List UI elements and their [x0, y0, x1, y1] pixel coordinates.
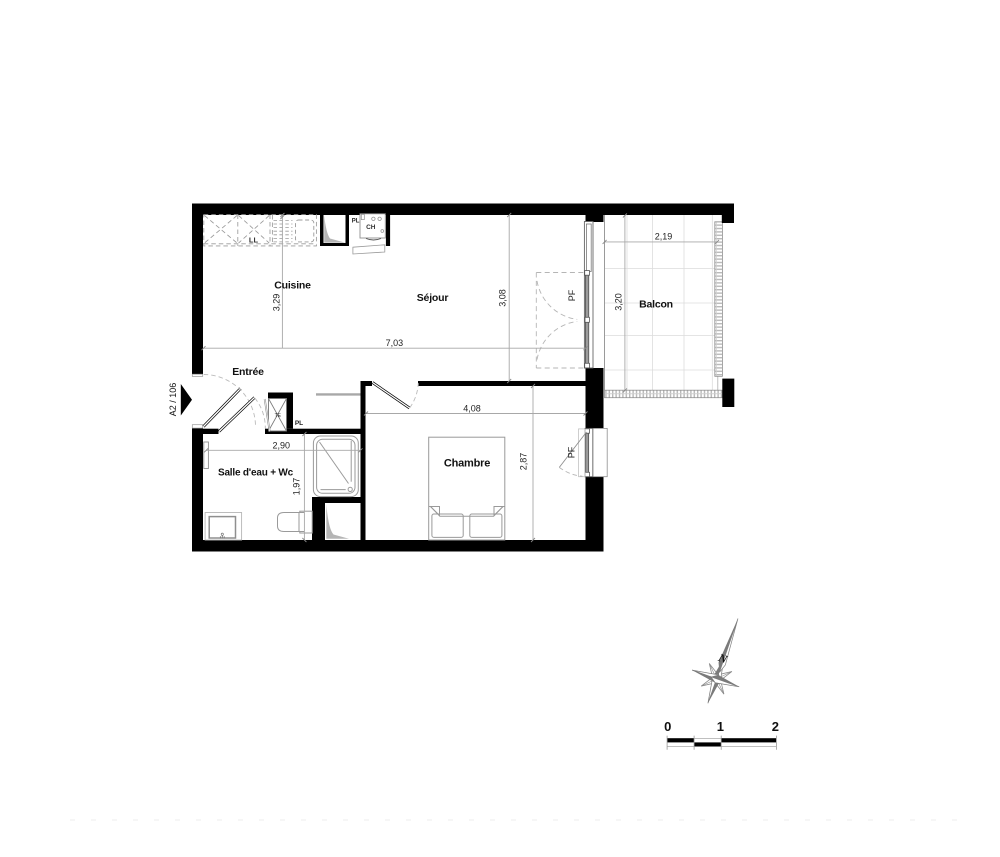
svg-text:TE: TE — [275, 413, 282, 419]
svg-text:Salle d'eau + Wc: Salle d'eau + Wc — [218, 468, 294, 479]
svg-text:1,97: 1,97 — [292, 478, 302, 496]
svg-text:2,90: 2,90 — [273, 441, 291, 451]
svg-text:1: 1 — [717, 719, 724, 734]
svg-text:Entrée: Entrée — [232, 366, 264, 378]
svg-text:2,19: 2,19 — [655, 232, 673, 242]
svg-text:PL: PL — [295, 420, 303, 427]
svg-text:2: 2 — [772, 719, 779, 734]
svg-text:3,20: 3,20 — [614, 293, 624, 311]
svg-text:CH: CH — [366, 224, 376, 231]
svg-text:PF: PF — [567, 446, 577, 458]
svg-text:Balcon: Balcon — [639, 299, 673, 311]
svg-text:3,29: 3,29 — [272, 294, 282, 312]
svg-text:Chambre: Chambre — [444, 458, 490, 470]
svg-text:0: 0 — [664, 719, 671, 734]
svg-text:Séjour: Séjour — [417, 292, 449, 304]
svg-text:2,87: 2,87 — [519, 453, 529, 471]
svg-text:PL: PL — [352, 218, 360, 224]
svg-text:4,08: 4,08 — [463, 404, 481, 414]
svg-text:PF: PF — [567, 289, 577, 301]
svg-text:A2 / 106: A2 / 106 — [168, 383, 178, 417]
svg-text:Cuisine: Cuisine — [274, 280, 311, 292]
svg-text:3,08: 3,08 — [498, 289, 508, 307]
svg-text:LL: LL — [249, 236, 259, 245]
svg-text:7,03: 7,03 — [386, 338, 404, 348]
